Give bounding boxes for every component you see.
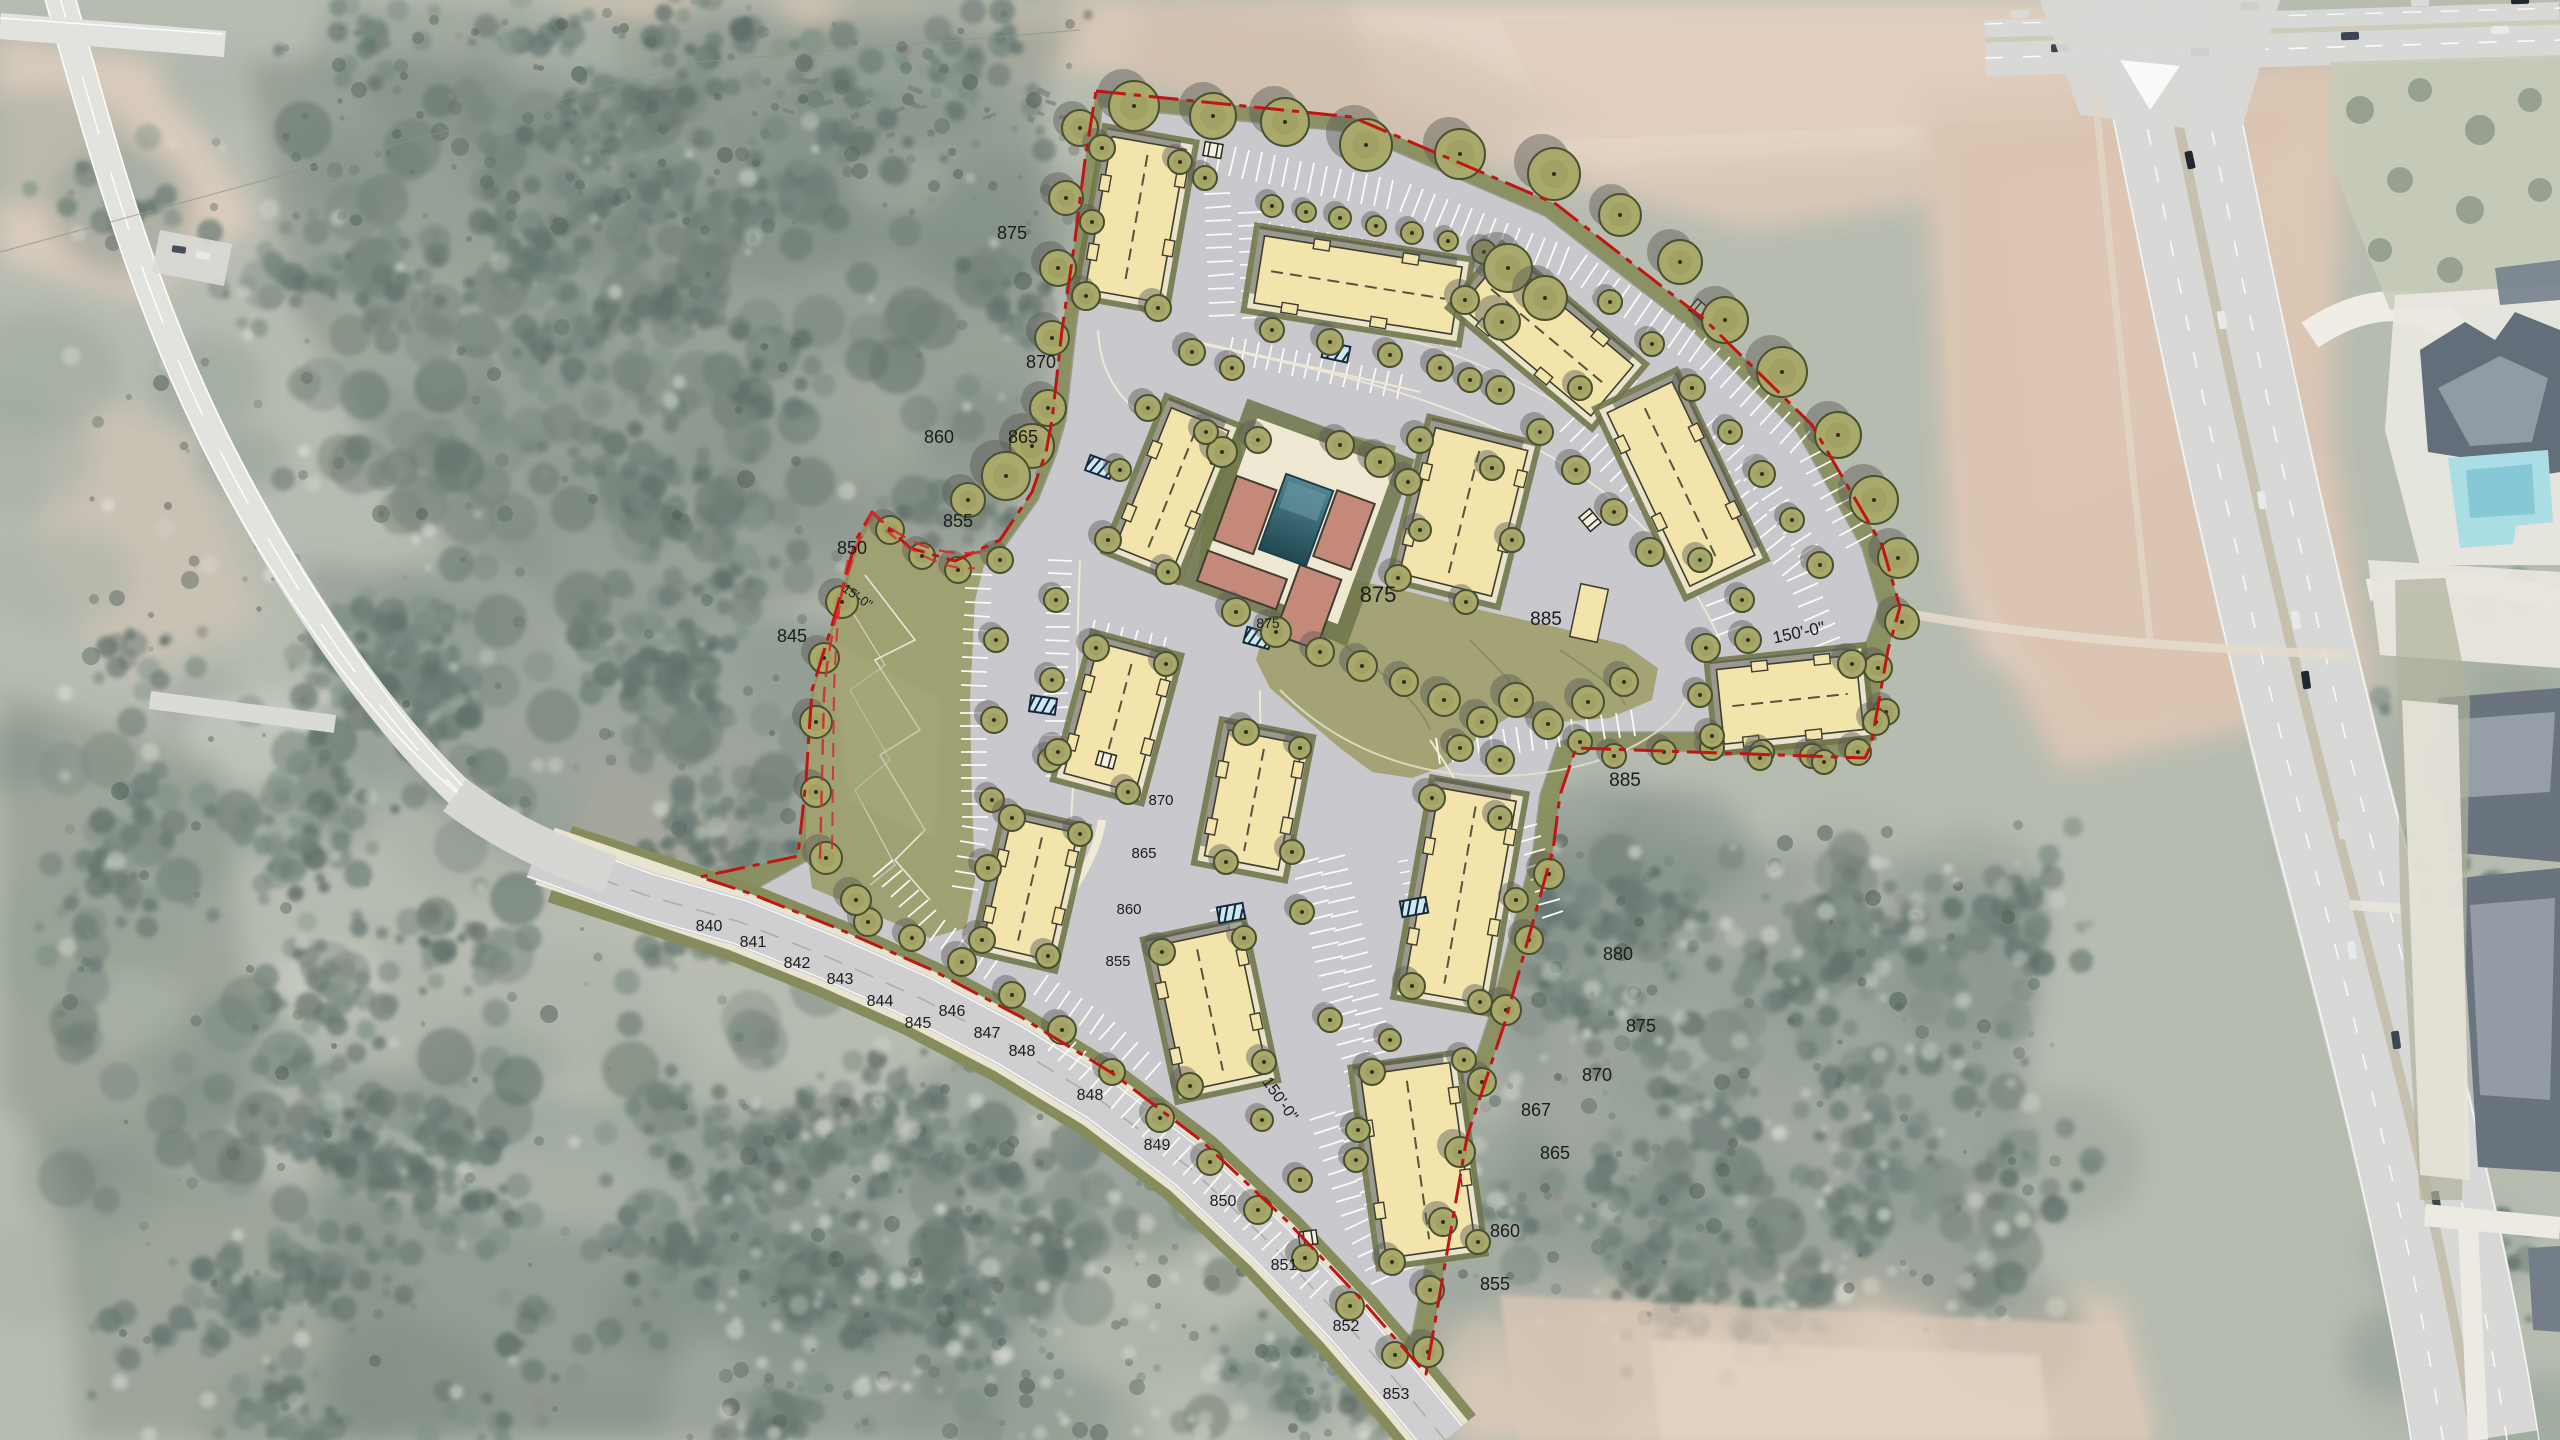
svg-text:875: 875 bbox=[1626, 1016, 1656, 1036]
svg-text:875: 875 bbox=[1360, 582, 1397, 607]
svg-text:841: 841 bbox=[740, 934, 767, 951]
svg-text:840: 840 bbox=[696, 918, 723, 935]
svg-text:865: 865 bbox=[1540, 1143, 1570, 1163]
svg-text:852: 852 bbox=[1333, 1318, 1360, 1335]
svg-text:855: 855 bbox=[943, 511, 973, 531]
svg-text:846: 846 bbox=[939, 1003, 966, 1020]
svg-text:867: 867 bbox=[1521, 1100, 1551, 1120]
svg-text:845: 845 bbox=[905, 1015, 932, 1032]
svg-text:870: 870 bbox=[1582, 1065, 1612, 1085]
svg-text:870: 870 bbox=[1148, 792, 1173, 809]
svg-text:865: 865 bbox=[1008, 427, 1038, 447]
svg-text:875: 875 bbox=[1256, 615, 1280, 631]
svg-text:865: 865 bbox=[1131, 845, 1156, 862]
svg-text:860: 860 bbox=[924, 427, 954, 447]
svg-text:853: 853 bbox=[1383, 1386, 1410, 1403]
svg-text:875: 875 bbox=[997, 223, 1027, 243]
svg-text:850: 850 bbox=[1210, 1193, 1237, 1210]
svg-text:848: 848 bbox=[1077, 1087, 1104, 1104]
svg-text:860: 860 bbox=[1490, 1221, 1520, 1241]
svg-text:844: 844 bbox=[867, 993, 894, 1010]
svg-text:847: 847 bbox=[974, 1025, 1001, 1042]
svg-text:848: 848 bbox=[1009, 1043, 1036, 1060]
svg-text:870: 870 bbox=[1026, 352, 1056, 372]
svg-text:880: 880 bbox=[1603, 944, 1633, 964]
svg-text:842: 842 bbox=[784, 955, 811, 972]
svg-text:855: 855 bbox=[1480, 1274, 1510, 1294]
svg-text:845: 845 bbox=[777, 626, 807, 646]
svg-text:855: 855 bbox=[1105, 953, 1130, 970]
svg-text:860: 860 bbox=[1116, 901, 1141, 918]
svg-text:885: 885 bbox=[1530, 609, 1562, 630]
svg-text:849: 849 bbox=[1144, 1137, 1171, 1154]
svg-text:885: 885 bbox=[1609, 770, 1641, 791]
svg-text:843: 843 bbox=[827, 971, 854, 988]
svg-text:850: 850 bbox=[837, 538, 867, 558]
svg-text:851: 851 bbox=[1271, 1257, 1298, 1274]
